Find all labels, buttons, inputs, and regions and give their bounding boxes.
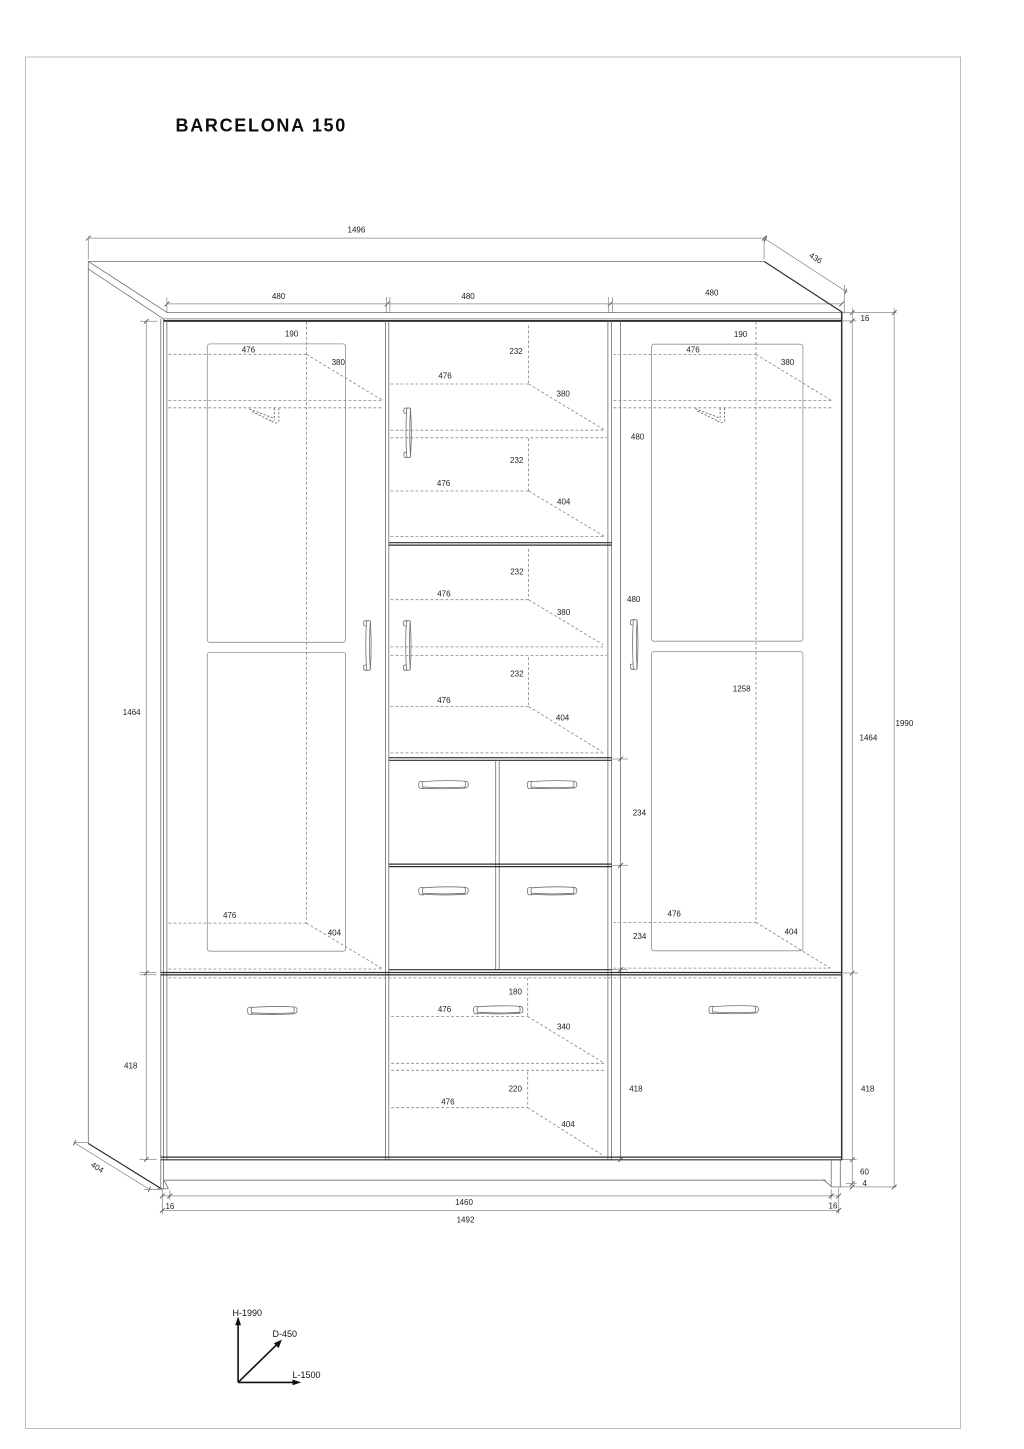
svg-text:1464: 1464 — [123, 708, 141, 717]
svg-text:404: 404 — [557, 497, 571, 506]
svg-text:232: 232 — [510, 456, 524, 465]
svg-text:60: 60 — [860, 1167, 869, 1176]
svg-text:1496: 1496 — [348, 225, 366, 234]
svg-text:340: 340 — [557, 1023, 571, 1032]
svg-text:180: 180 — [509, 988, 523, 997]
svg-text:1464: 1464 — [860, 734, 878, 743]
svg-text:480: 480 — [631, 432, 645, 441]
svg-text:16: 16 — [829, 1202, 838, 1211]
svg-text:404: 404 — [556, 714, 570, 723]
svg-text:D-450: D-450 — [273, 1329, 298, 1339]
svg-text:476: 476 — [242, 346, 256, 355]
svg-text:1990: 1990 — [896, 719, 914, 728]
svg-text:16: 16 — [165, 1202, 174, 1211]
svg-text:404: 404 — [561, 1120, 575, 1129]
svg-text:220: 220 — [509, 1085, 523, 1094]
svg-text:480: 480 — [705, 288, 719, 297]
svg-text:232: 232 — [510, 568, 524, 577]
svg-text:476: 476 — [686, 345, 700, 354]
svg-text:476: 476 — [437, 479, 451, 488]
svg-text:1258: 1258 — [733, 685, 751, 694]
svg-text:476: 476 — [223, 911, 237, 920]
svg-text:190: 190 — [734, 330, 748, 339]
svg-text:232: 232 — [510, 670, 524, 679]
svg-text:480: 480 — [627, 595, 641, 604]
svg-text:476: 476 — [438, 371, 452, 380]
svg-text:380: 380 — [557, 608, 571, 617]
svg-text:476: 476 — [438, 1005, 452, 1014]
svg-text:418: 418 — [124, 1061, 138, 1070]
svg-text:1460: 1460 — [455, 1198, 473, 1207]
svg-text:476: 476 — [437, 590, 451, 599]
svg-text:418: 418 — [861, 1085, 875, 1094]
svg-text:234: 234 — [633, 809, 647, 818]
svg-text:16: 16 — [860, 314, 869, 323]
svg-text:480: 480 — [272, 292, 286, 301]
svg-text:476: 476 — [441, 1098, 455, 1107]
svg-text:380: 380 — [781, 358, 795, 367]
svg-text:232: 232 — [509, 347, 523, 356]
svg-text:380: 380 — [557, 390, 571, 399]
svg-text:404: 404 — [328, 928, 342, 937]
svg-text:190: 190 — [285, 330, 299, 339]
svg-text:404: 404 — [785, 928, 799, 937]
svg-text:476: 476 — [437, 696, 451, 705]
svg-text:BARCELONA 150: BARCELONA 150 — [176, 116, 347, 136]
svg-text:234: 234 — [633, 932, 647, 941]
svg-text:380: 380 — [332, 358, 346, 367]
svg-text:4: 4 — [863, 1179, 868, 1188]
svg-text:H-1990: H-1990 — [233, 1308, 263, 1318]
svg-text:L-1500: L-1500 — [293, 1370, 321, 1380]
svg-text:476: 476 — [668, 909, 682, 918]
svg-text:480: 480 — [461, 292, 475, 301]
svg-text:418: 418 — [629, 1085, 643, 1094]
svg-text:1492: 1492 — [457, 1215, 475, 1224]
